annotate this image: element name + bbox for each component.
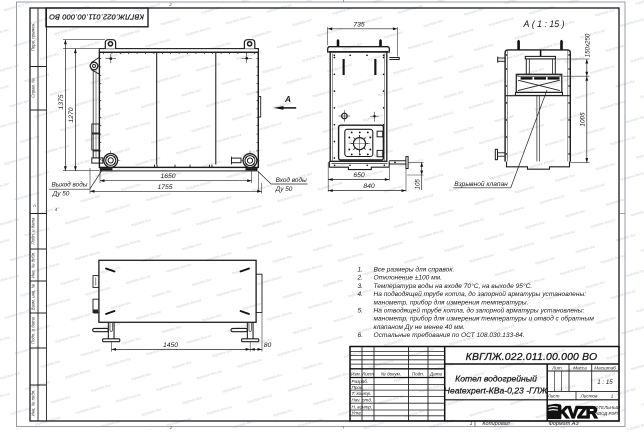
svg-text:150х250: 150х250 xyxy=(585,33,592,57)
svg-text:105: 105 xyxy=(414,179,421,190)
svg-text:Изм.: Изм. xyxy=(351,372,361,377)
svg-text:Нач. отд.: Нач. отд. xyxy=(352,398,373,403)
svg-text:2: 2 xyxy=(169,425,173,430)
svg-text:5.: 5. xyxy=(358,308,364,315)
svg-text:3.: 3. xyxy=(358,283,364,290)
svg-text:манометр, прибор для измерения: манометр, прибор для измерения температу… xyxy=(374,315,595,323)
svg-text:Все размеры для справок.: Все размеры для справок. xyxy=(374,266,455,274)
svg-text:Вход воды: Вход воды xyxy=(276,176,307,184)
svg-text:1450: 1450 xyxy=(163,342,178,349)
svg-text:Остальные требования по ОСТ 10: Остальные требования по ОСТ 108.030.133-… xyxy=(374,331,525,339)
svg-text:Масса: Масса xyxy=(573,365,587,370)
svg-text:Справ. №: Справ. № xyxy=(30,78,35,98)
svg-text:1.: 1. xyxy=(358,267,364,274)
svg-text:Лист: Лист xyxy=(547,394,560,399)
svg-text:№ докум.: № докум. xyxy=(381,372,401,377)
svg-text:Ду 50: Ду 50 xyxy=(52,191,70,198)
svg-text:Лит.: Лит. xyxy=(551,365,563,370)
svg-text:735: 735 xyxy=(353,21,365,28)
svg-text:1: 1 xyxy=(611,394,614,399)
svg-text:4.: 4. xyxy=(358,291,364,298)
svg-text:1755: 1755 xyxy=(157,184,172,191)
svg-text:Подп. и дата: Подп. и дата xyxy=(30,217,35,245)
svg-text:1270: 1270 xyxy=(68,107,75,122)
svg-text:КВГЛЖ.022.011.00.000 ВО: КВГЛЖ.022.011.00.000 ВО xyxy=(49,13,144,22)
svg-text:1005: 1005 xyxy=(579,112,586,127)
svg-text:2: 2 xyxy=(168,2,172,7)
svg-text:Ду 50: Ду 50 xyxy=(275,186,293,193)
svg-text:Масштаб: Масштаб xyxy=(594,365,616,370)
svg-text:манометр, прибор для измерения: манометр, прибор для измерения температу… xyxy=(374,298,529,306)
svg-text:А ( 1 : 15 ): А ( 1 : 15 ) xyxy=(522,19,564,29)
svg-text:Котел водогрейный: Котел водогрейный xyxy=(455,374,537,384)
svg-text:КВГЛЖ.022.011.00.000 ВО: КВГЛЖ.022.011.00.000 ВО xyxy=(466,352,598,363)
svg-text:Инв. № дубл.: Инв. № дубл. xyxy=(30,252,35,278)
svg-text:Лист: Лист xyxy=(361,372,374,377)
svg-text:КОТЕЛЬНЫЙ: КОТЕЛЬНЫЙ xyxy=(593,405,621,410)
svg-text:Heatexpert-КВа-0,23 -ГЛЖ: Heatexpert-КВа-0,23 -ГЛЖ xyxy=(444,385,549,395)
svg-text:Температура воды на входе 70°С: Температура воды на входе 70°С, на выход… xyxy=(374,282,533,290)
svg-text:1: 1 xyxy=(470,421,473,427)
svg-text:Копировал: Копировал xyxy=(482,421,509,427)
svg-text:Формат А3: Формат А3 xyxy=(548,421,579,427)
svg-text:А: А xyxy=(284,95,291,104)
svg-text:Н. контр.: Н. контр. xyxy=(352,405,373,410)
svg-text:клапаном Ду не менее 40 мм.: клапаном Ду не менее 40 мм. xyxy=(374,324,466,331)
svg-text:1 : 15: 1 : 15 xyxy=(597,379,613,386)
svg-text:840: 840 xyxy=(363,183,375,190)
svg-text:Дата: Дата xyxy=(429,372,443,377)
svg-text:Взрывной клапан: Взрывной клапан xyxy=(454,180,508,188)
svg-text:Утв.: Утв. xyxy=(352,411,362,416)
svg-text:На отводящей трубе котла, до з: На отводящей трубе котла, до запорной ар… xyxy=(374,307,585,315)
svg-text:1650: 1650 xyxy=(160,173,175,180)
svg-text:Т. контр.: Т. контр. xyxy=(352,391,372,396)
svg-text:А: А xyxy=(32,203,36,208)
svg-text:650: 650 xyxy=(353,172,365,179)
svg-text:Подп.: Подп. xyxy=(412,372,424,377)
svg-text:Перв. примен.: Перв. примен. xyxy=(30,23,35,52)
svg-text:Разраб.: Разраб. xyxy=(352,379,369,384)
svg-text:2.: 2. xyxy=(357,275,364,282)
svg-text:ЗАВОД РЭП: ЗАВОД РЭП xyxy=(593,411,619,416)
svg-text:Инв. № подл.: Инв. № подл. xyxy=(30,390,35,417)
svg-text:Листов: Листов xyxy=(580,394,598,399)
svg-text:На подводящей трубе котла, до: На подводящей трубе котла, до запорной а… xyxy=(374,290,587,298)
svg-text:Отклонение ±100 мм.: Отклонение ±100 мм. xyxy=(374,275,443,282)
svg-text:80: 80 xyxy=(264,342,272,349)
svg-text:Подп. и дата: Подп. и дата xyxy=(30,316,35,344)
svg-text:Взам. инв. №: Взам. инв. № xyxy=(30,283,35,310)
svg-text:6.: 6. xyxy=(358,332,364,339)
svg-text:Пров.: Пров. xyxy=(352,385,364,390)
svg-text:Выход воды: Выход воды xyxy=(52,181,88,189)
svg-text:1375: 1375 xyxy=(58,94,65,109)
